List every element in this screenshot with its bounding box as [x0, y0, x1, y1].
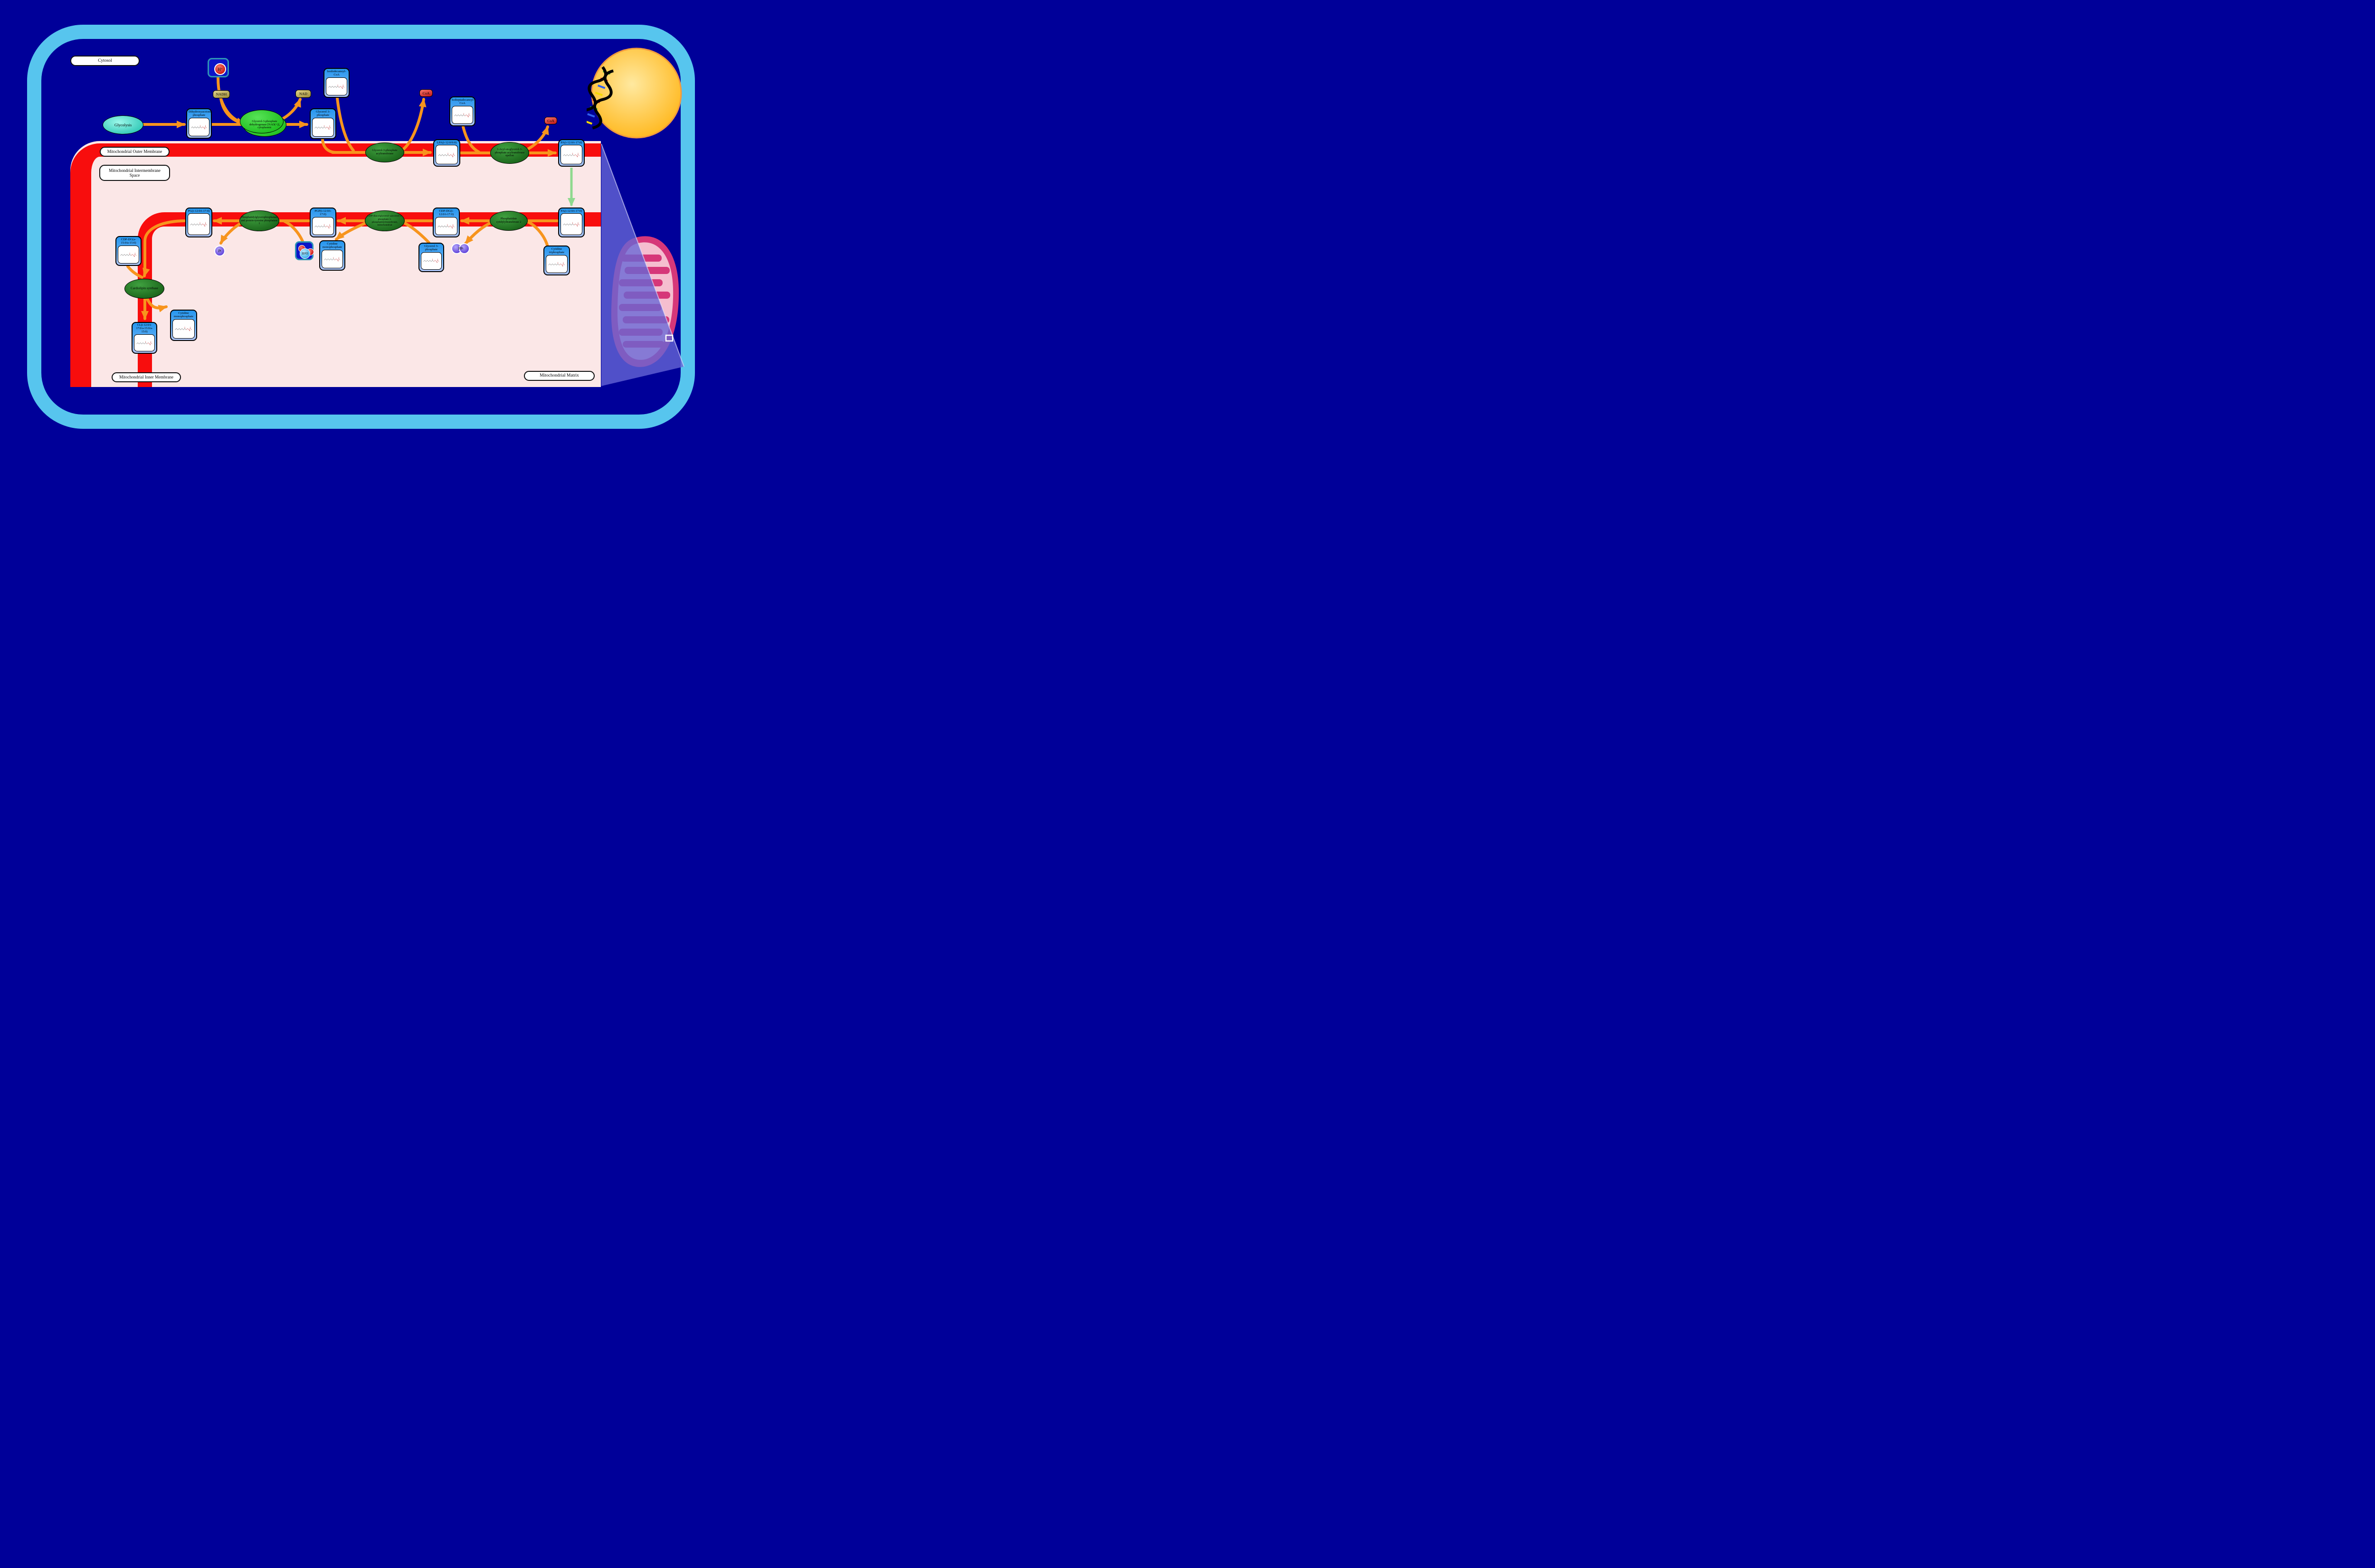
- enzyme-agpat-epsilon[interactable]: 1-Acyl-sn-glycerol-3-phosphate acyltrans…: [490, 142, 529, 164]
- metabolite-isoheptadecanoyl-coa[interactable]: Isoheptadecanoyl-CoA: [449, 96, 475, 126]
- molecule-structure: [436, 145, 458, 164]
- metabolite-cmp-cl[interactable]: Cytidine monophosphate: [170, 310, 197, 341]
- metabolite-pa-outer[interactable]: PA(i-12:0/i-17:0): [558, 139, 585, 167]
- cofactor-nad[interactable]: NAD: [295, 90, 311, 98]
- molecule-structure: [452, 106, 473, 124]
- inner-membrane-band: [138, 212, 601, 387]
- compartment-label-cytosol: Cytosol: [70, 56, 140, 66]
- molecule-structure: [326, 77, 347, 95]
- enzyme-ptpmt1[interactable]: Phosphatidylglycerophosphatase and prote…: [239, 210, 279, 231]
- molecule-structure: [312, 118, 334, 137]
- enzyme-cardiolipin-synthase[interactable]: Cardiolipin synthase: [124, 279, 164, 299]
- metabolite-g3p-matrix[interactable]: Glycerol 3-phosphate: [418, 243, 444, 272]
- molecule-structure: [421, 252, 442, 270]
- compartment-label-inner-membrane: Mitochondrial Inner Membrane: [112, 372, 181, 382]
- metabolite-dhap[interactable]: Dihydroxyacetone phosphate: [186, 108, 212, 139]
- pathway-node-glycolysis[interactable]: Glycolysis: [103, 115, 143, 134]
- cofactor-pi[interactable]: Pi: [214, 246, 225, 256]
- compartment-label-outer-membrane: Mitochondrial Outer Membrane: [100, 147, 170, 157]
- mitochondrion-zoom: [596, 138, 691, 392]
- molecule-structure: [118, 246, 139, 264]
- metabolite-cdp-dg-2[interactable]: CDP-DG(a-15:0/a-15:0): [115, 236, 142, 266]
- molecule-structure: [189, 118, 209, 136]
- water-box[interactable]: H2O: [295, 241, 313, 260]
- metabolite-cdp-dg-1[interactable]: CDP-DG(i-12:0/i-17:0): [433, 208, 460, 237]
- enzyme-pgs1[interactable]: CDP-diacylglycerol--glycerol-3-phosphate…: [365, 210, 405, 231]
- cofactor-ppi[interactable]: PPi: [451, 243, 470, 255]
- enzyme-gpat[interactable]: Glycerol-3-phosphate acyltransferase: [365, 142, 404, 162]
- nucleus-illustration: [587, 45, 686, 145]
- compartment-label-intermembrane-space: Mitochondrial Intermembrane Space: [99, 165, 170, 181]
- metabolite-pa-inner[interactable]: PA(i-12:0/i-17:0): [558, 208, 585, 237]
- molecule-structure: [546, 255, 568, 273]
- cofactor-coa-1[interactable]: CoA: [419, 89, 433, 97]
- molecule-structure: [560, 213, 582, 235]
- metabolite-pg[interactable]: PG(i-12:0/i-17:0): [185, 208, 212, 237]
- molecule-structure: [188, 213, 210, 235]
- metabolite-pgp[interactable]: PGP(i-12:0/i-17:0): [310, 208, 336, 237]
- molecule-structure: [312, 217, 334, 235]
- enzyme-cds2[interactable]: Phosphatidate cytidylyltransferase 2: [490, 211, 528, 231]
- molecule-structure: [134, 334, 155, 351]
- metabolite-cardiolipin[interactable]: CL(i-12:0/i-17:0/a-15:0/a-15:0): [132, 322, 157, 354]
- metabolite-ctp[interactable]: Cytidine triphosphate: [543, 246, 570, 275]
- compartment-label-matrix: Mitochondrial Matrix: [524, 371, 595, 381]
- nucleus-body: [592, 48, 681, 138]
- metabolite-isododecanoyl-coa[interactable]: Isododecanoyl-CoA: [323, 68, 350, 98]
- enzyme-gpd1[interactable]: Glycerol-3-phosphate dehydrogenase [NAD(…: [243, 113, 286, 137]
- metabolite-g3p-cytosol[interactable]: Glycerol 3-phosphate: [310, 108, 336, 139]
- cofactor-coa-2[interactable]: CoA: [544, 117, 557, 124]
- metabolite-cmp-matrix[interactable]: Cytidine monophosphate: [319, 240, 345, 271]
- metabolite-lpa[interactable]: LPA(i-12:0/0:0): [433, 139, 460, 167]
- cofactor-nadh[interactable]: NADH: [213, 90, 230, 98]
- molecule-structure: [322, 250, 343, 268]
- water-molecule-icon: H2O: [300, 248, 310, 259]
- proton-box[interactable]: H+: [208, 58, 229, 77]
- molecule-structure: [172, 319, 195, 339]
- molecule-structure: [435, 217, 457, 235]
- proton-icon: H+: [214, 63, 226, 75]
- molecule-structure: [560, 145, 582, 164]
